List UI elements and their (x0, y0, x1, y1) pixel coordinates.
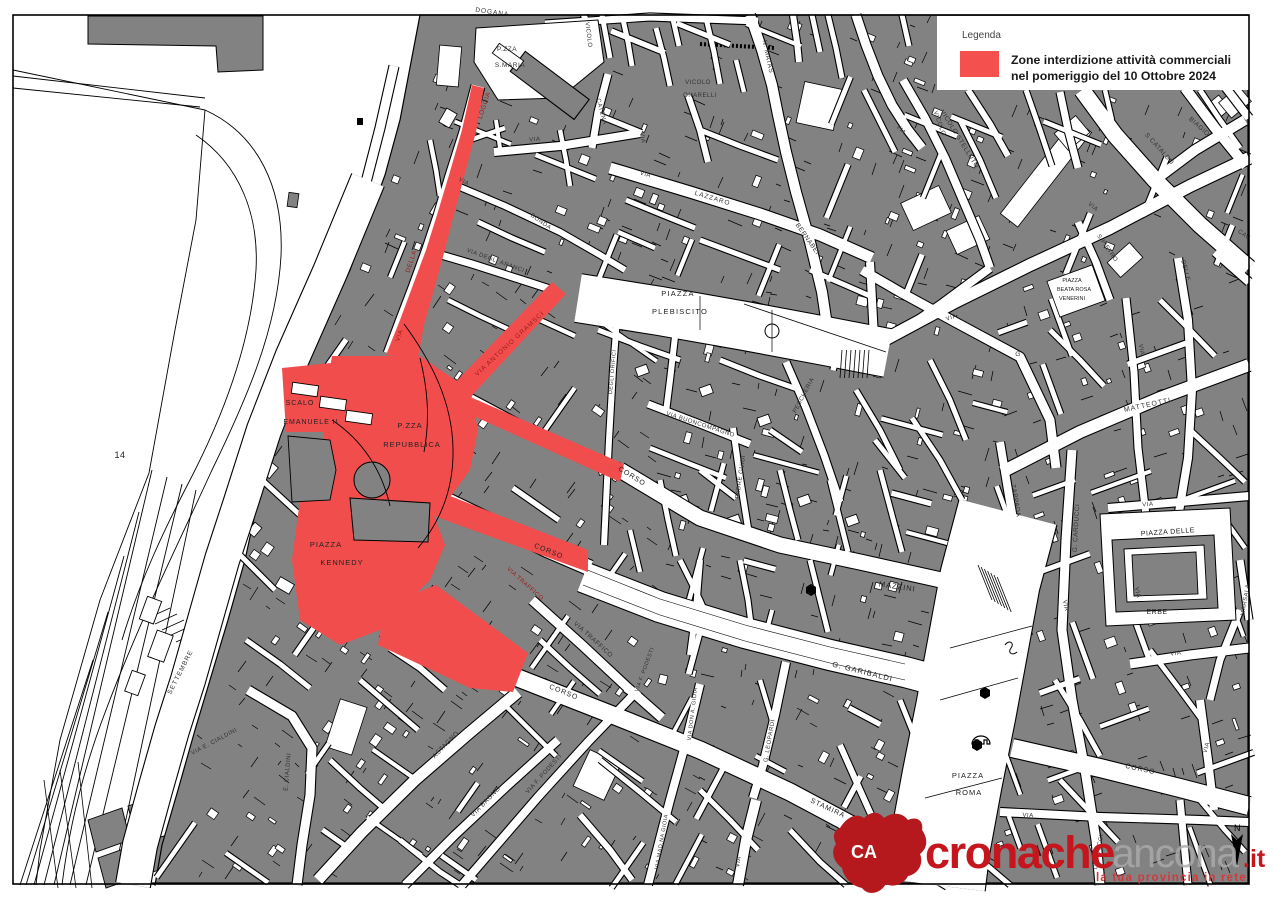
svg-text:P.ZZA: P.ZZA (497, 46, 517, 53)
svg-text:S.MARIA: S.MARIA (495, 62, 525, 69)
svg-text:ancona: ancona (1112, 830, 1239, 876)
svg-text:EMANUELE II: EMANUELE II (283, 419, 338, 426)
svg-text:Legenda: Legenda (962, 30, 1001, 41)
svg-text:ROMA: ROMA (956, 788, 983, 797)
svg-text:14: 14 (114, 450, 125, 460)
svg-text:BEATA ROSA: BEATA ROSA (1057, 287, 1091, 293)
svg-text:VIA: VIA (529, 137, 541, 144)
svg-text:PIAZZA: PIAZZA (661, 289, 694, 298)
svg-text:G: G (1015, 351, 1021, 358)
svg-text:Zone interdizione attività com: Zone interdizione attività commerciali (1011, 53, 1231, 67)
svg-text:.it: .it (1243, 845, 1266, 873)
svg-text:ERBE: ERBE (1146, 609, 1167, 616)
svg-text:KENNEDY: KENNEDY (320, 558, 363, 567)
svg-text:P.ZZA: P.ZZA (397, 421, 422, 430)
svg-text:PLEBISCITO: PLEBISCITO (652, 307, 708, 316)
svg-text:VIA: VIA (1142, 502, 1154, 509)
svg-text:VIA: VIA (1022, 813, 1033, 820)
svg-text:VICOLO: VICOLO (685, 80, 711, 86)
svg-text:cronache: cronache (925, 827, 1114, 878)
svg-text:PIAZZA: PIAZZA (952, 771, 984, 780)
svg-text:SCALO: SCALO (286, 400, 315, 407)
svg-text:VENERINI: VENERINI (1059, 296, 1085, 302)
svg-text:PIAZZA: PIAZZA (310, 540, 342, 549)
svg-text:REPUBBLICA: REPUBBLICA (383, 440, 441, 449)
svg-text:ONARELLI: ONARELLI (683, 93, 717, 99)
svg-text:la tua provincia in rete: la tua provincia in rete (1096, 872, 1247, 884)
svg-text:nel pomeriggio del 10 Ottobre: nel pomeriggio del 10 Ottobre 2024 (1011, 69, 1216, 83)
svg-text:PIAZZA: PIAZZA (1062, 278, 1082, 284)
svg-text:CA: CA (851, 842, 877, 862)
